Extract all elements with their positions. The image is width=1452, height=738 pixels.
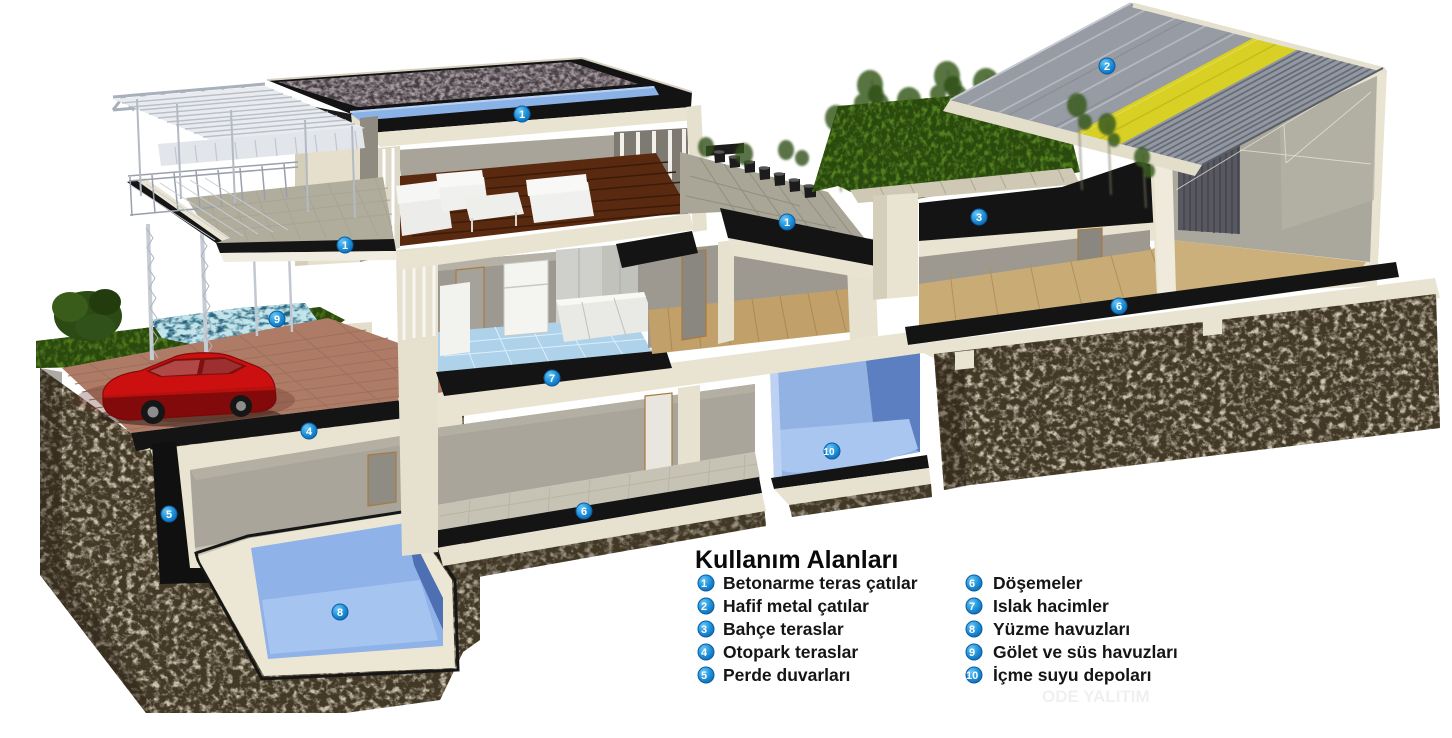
svg-text:9: 9 — [969, 647, 975, 659]
svg-text:Gölet ve süs havuzları: Gölet ve süs havuzları — [993, 642, 1178, 662]
svg-text:5: 5 — [166, 509, 172, 521]
svg-text:7: 7 — [969, 601, 975, 613]
svg-text:4: 4 — [306, 426, 313, 438]
svg-text:1: 1 — [342, 240, 348, 252]
svg-text:ODE YALITIM: ODE YALITIM — [1042, 687, 1150, 706]
svg-text:8: 8 — [969, 624, 975, 636]
svg-text:İçme suyu depoları: İçme suyu depoları — [993, 665, 1152, 685]
svg-text:6: 6 — [1116, 301, 1122, 313]
svg-text:6: 6 — [969, 578, 975, 590]
svg-text:1: 1 — [519, 109, 525, 121]
svg-text:7: 7 — [549, 373, 555, 385]
svg-text:3: 3 — [976, 212, 982, 224]
svg-text:1: 1 — [784, 217, 790, 229]
svg-text:1: 1 — [701, 578, 707, 590]
svg-text:Yüzme havuzları: Yüzme havuzları — [993, 619, 1130, 639]
svg-text:Kullanım Alanları: Kullanım Alanları — [695, 546, 898, 574]
svg-text:2: 2 — [1104, 61, 1110, 73]
svg-text:6: 6 — [581, 506, 587, 518]
svg-text:Bahçe teraslar: Bahçe teraslar — [723, 619, 844, 639]
svg-text:8: 8 — [337, 607, 343, 619]
svg-text:5: 5 — [701, 670, 707, 682]
svg-text:4: 4 — [701, 647, 708, 659]
svg-text:3: 3 — [701, 624, 707, 636]
svg-text:Döşemeler: Döşemeler — [993, 573, 1083, 593]
svg-text:Islak hacimler: Islak hacimler — [993, 596, 1109, 616]
svg-text:Betonarme teras çatılar: Betonarme teras çatılar — [723, 573, 918, 593]
svg-text:10: 10 — [823, 447, 835, 458]
svg-text:9: 9 — [274, 314, 280, 326]
svg-text:Otopark teraslar: Otopark teraslar — [723, 642, 858, 662]
svg-text:2: 2 — [701, 601, 707, 613]
svg-text:Hafif metal çatılar: Hafif metal çatılar — [723, 596, 869, 616]
svg-text:Perde duvarları: Perde duvarları — [723, 665, 850, 685]
svg-text:10: 10 — [966, 670, 978, 682]
